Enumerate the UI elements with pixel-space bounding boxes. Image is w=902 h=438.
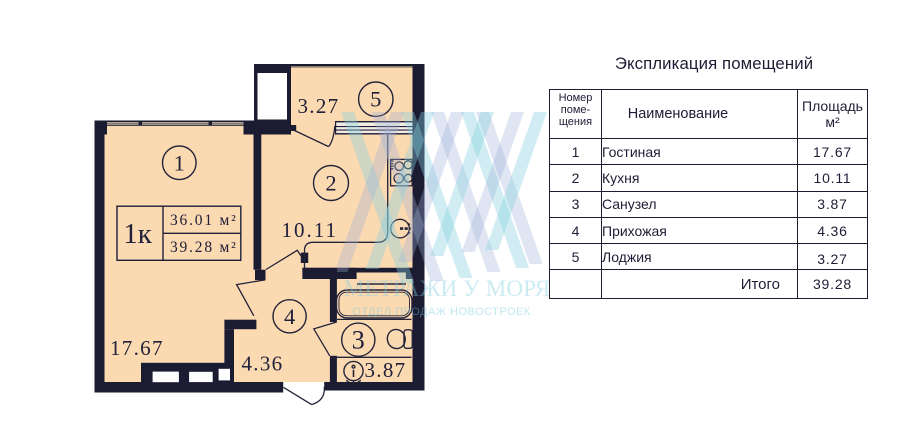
- svg-text:36.01 м²: 36.01 м²: [170, 212, 238, 229]
- svg-text:17.67: 17.67: [110, 336, 164, 360]
- svg-text:1к: 1к: [123, 218, 153, 250]
- svg-text:3.27: 3.27: [298, 94, 340, 118]
- svg-text:ОТДЕЛ ПРОДАЖ НОВОСТРОЕК: ОТДЕЛ ПРОДАЖ НОВОСТРОЕК: [352, 306, 531, 318]
- svg-text:10.11: 10.11: [282, 218, 338, 242]
- svg-text:3: 3: [352, 325, 365, 354]
- svg-text:МЕТРАЖИ У МОРЯ: МЕТРАЖИ У МОРЯ: [344, 276, 551, 301]
- svg-text:4: 4: [284, 304, 295, 329]
- svg-text:39.28 м²: 39.28 м²: [170, 239, 238, 256]
- svg-text:5: 5: [370, 87, 381, 112]
- svg-text:4.36: 4.36: [242, 352, 284, 376]
- svg-text:3.87: 3.87: [365, 358, 407, 382]
- svg-text:1: 1: [174, 150, 185, 175]
- svg-text:2: 2: [325, 171, 336, 196]
